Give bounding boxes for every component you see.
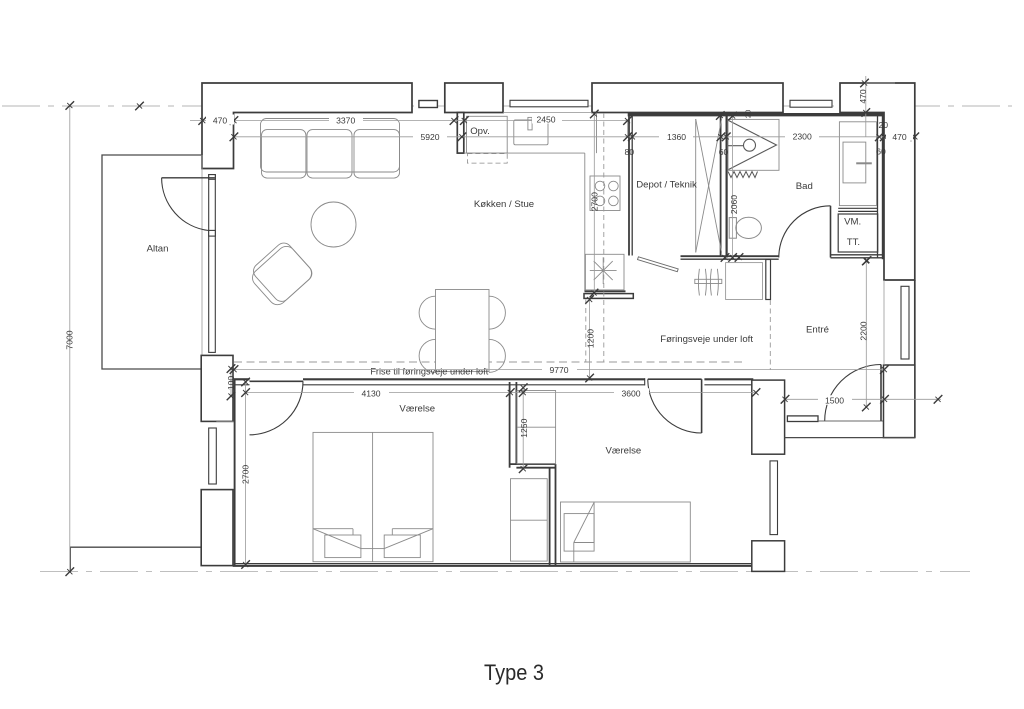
svg-text:Depot / Teknik: Depot / Teknik [636,180,697,191]
svg-text:5920: 5920 [420,132,439,142]
svg-text:470: 470 [892,132,907,142]
svg-text:Altan: Altan [147,244,169,255]
svg-text:9770: 9770 [549,365,568,375]
svg-text:TT.: TT. [847,237,860,248]
svg-text:1360: 1360 [667,132,686,142]
svg-text:80: 80 [625,147,635,157]
svg-text:Køkken / Stue: Køkken / Stue [474,199,534,210]
svg-text:470: 470 [858,89,868,104]
svg-text:Opv.: Opv. [470,126,490,137]
svg-text:60: 60 [719,147,729,157]
svg-text:Entré: Entré [806,325,829,336]
svg-text:1500: 1500 [825,396,844,406]
svg-text:470: 470 [213,116,228,126]
svg-text:2450: 2450 [536,115,555,125]
svg-text:2200: 2200 [859,321,869,340]
svg-text:2700: 2700 [241,465,251,484]
svg-text:Type 3: Type 3 [484,660,544,685]
svg-text:4130: 4130 [361,388,380,398]
svg-text:1250: 1250 [519,418,529,437]
svg-text:3370: 3370 [336,116,355,126]
svg-text:2700: 2700 [589,192,599,211]
svg-text:Føringsveje under loft: Føringsveje under loft [660,334,753,345]
svg-text:60: 60 [876,146,886,156]
svg-text:2060: 2060 [729,195,739,214]
svg-text:1200: 1200 [586,329,596,348]
svg-text:Værelse: Værelse [606,446,642,457]
svg-text:2300: 2300 [793,132,812,142]
svg-text:7000: 7000 [65,330,75,349]
svg-text:Frise til føringsveje under lo: Frise til føringsveje under loft [370,367,488,377]
svg-text:VM.: VM. [844,216,861,227]
svg-text:20: 20 [879,120,889,130]
svg-text:Bad: Bad [796,181,813,192]
svg-text:20: 20 [743,110,752,118]
svg-text:Værelse: Værelse [399,403,435,414]
svg-text:3600: 3600 [621,389,640,399]
svg-text:100: 100 [226,376,236,391]
